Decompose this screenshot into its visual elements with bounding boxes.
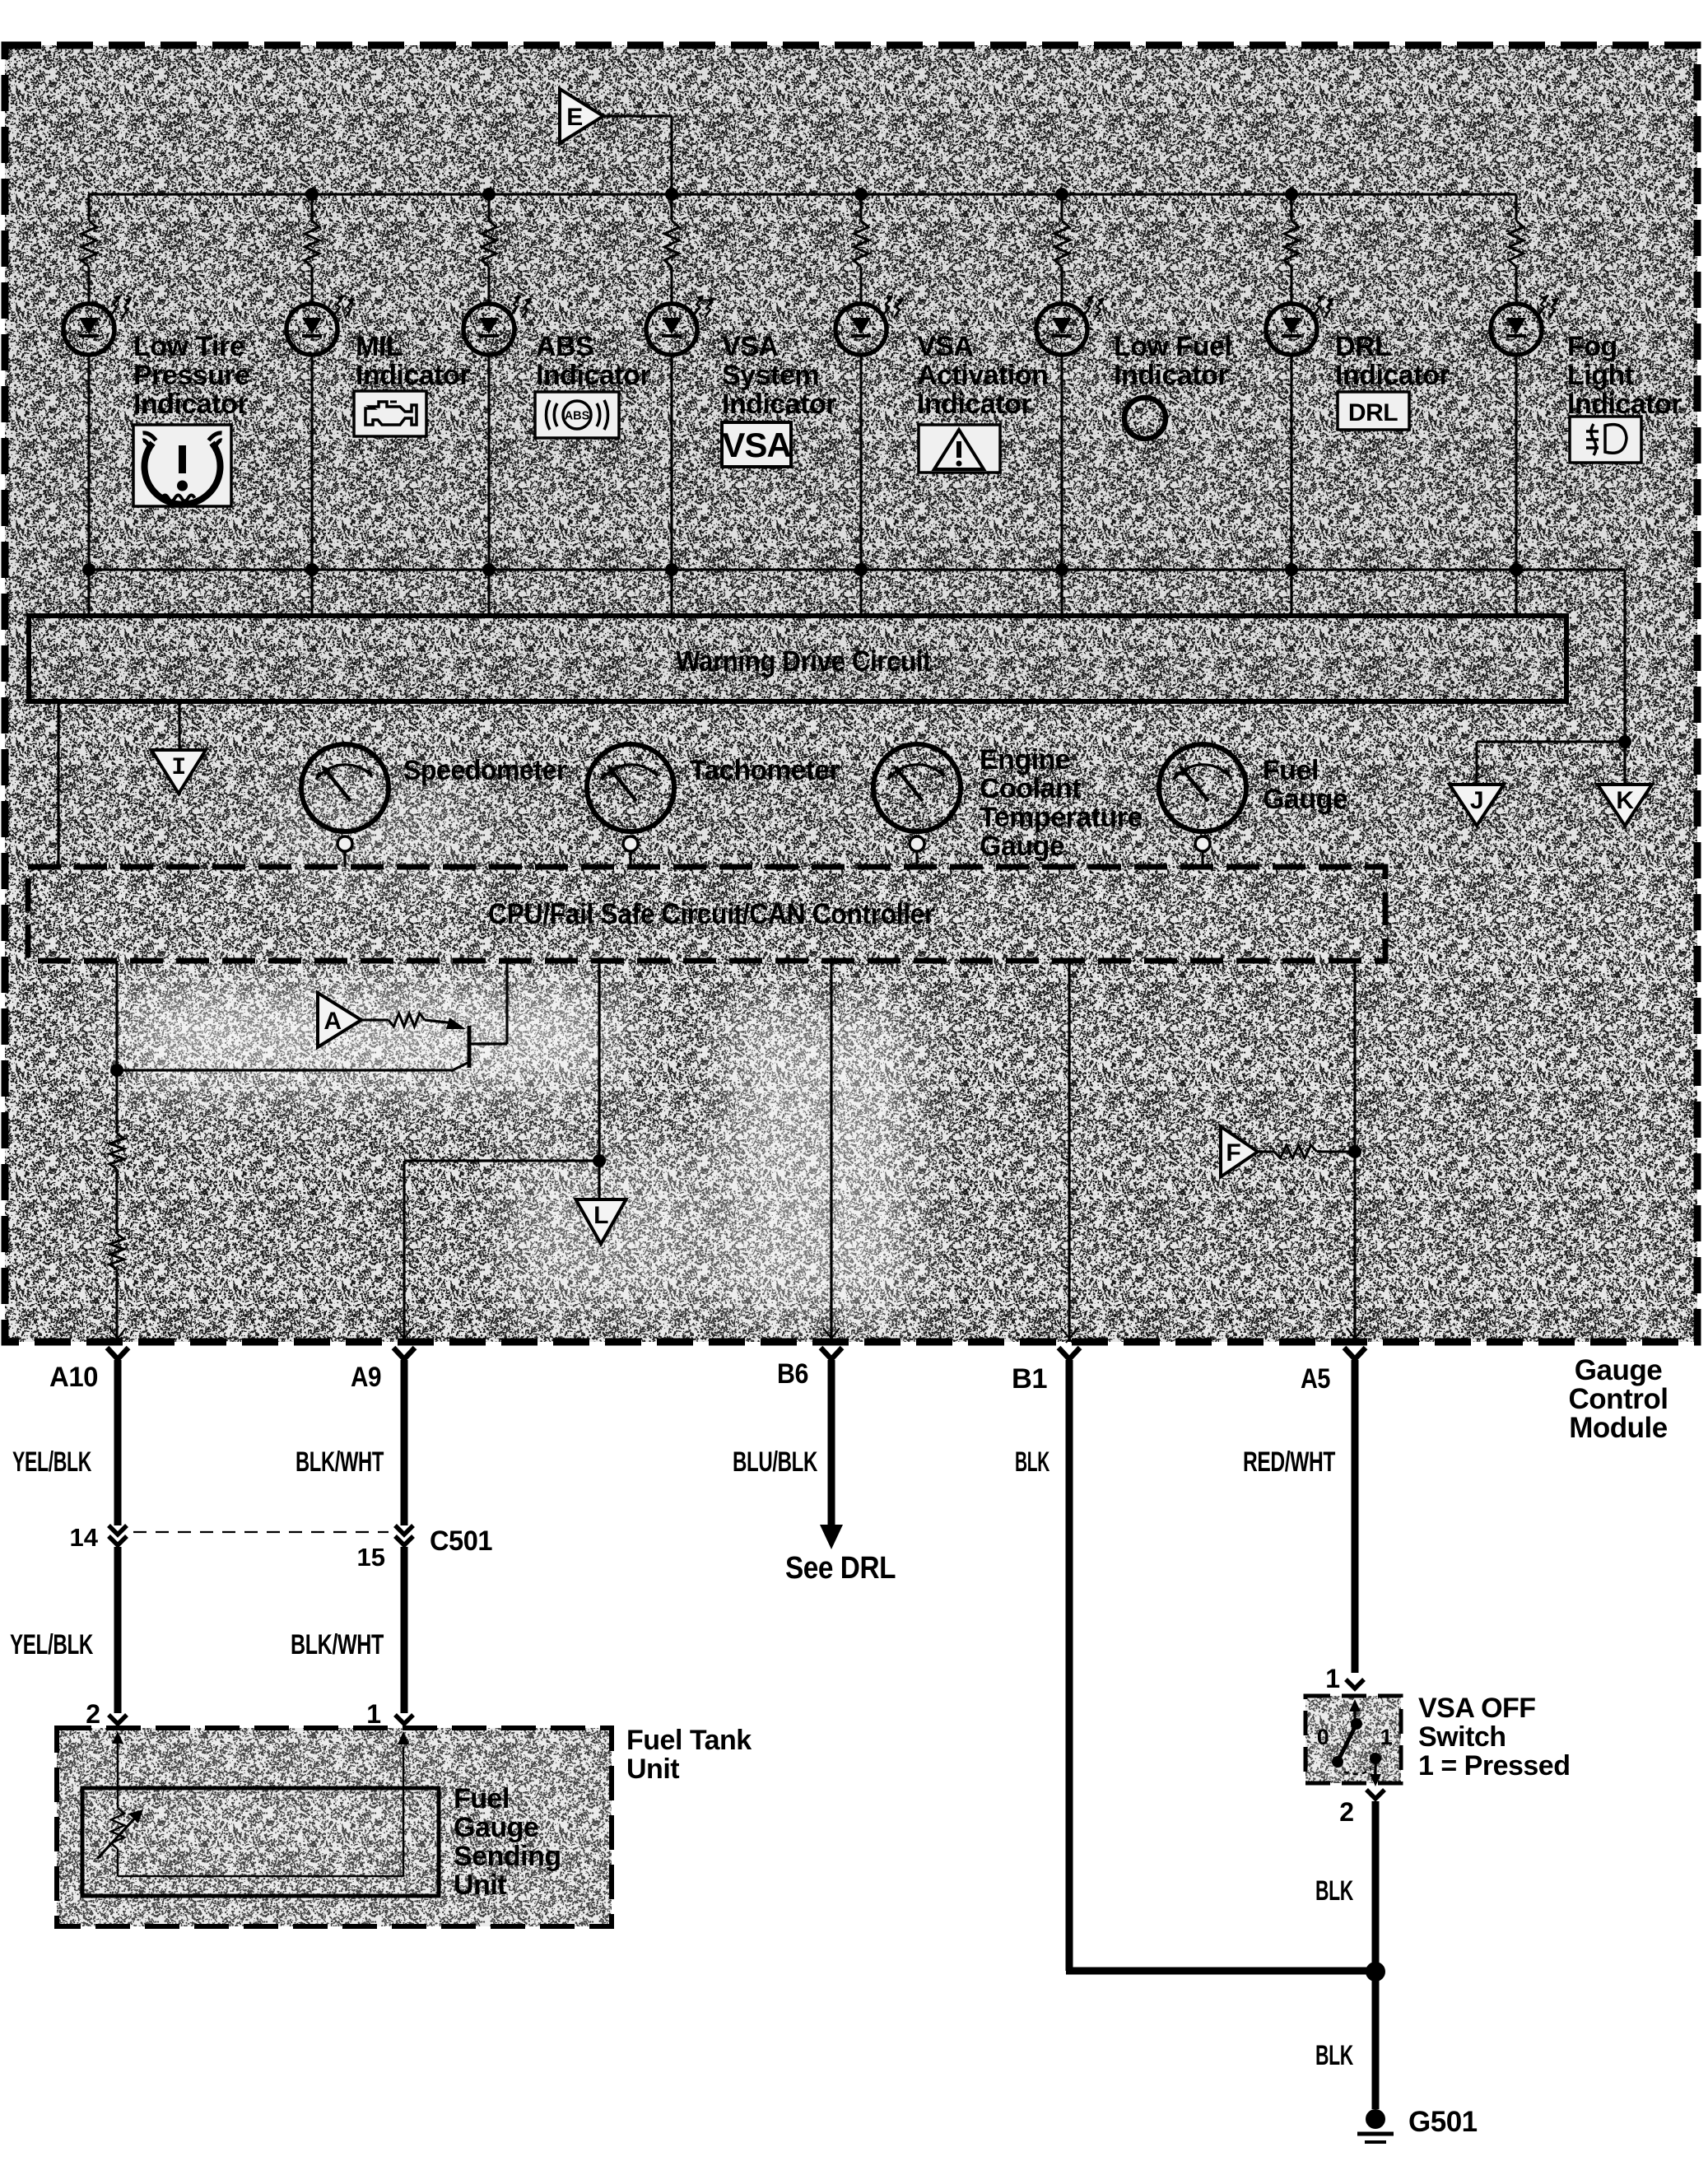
svg-text:Indicator: Indicator xyxy=(536,360,650,391)
svg-text:Pressure: Pressure xyxy=(133,360,250,391)
svg-text:K: K xyxy=(1616,787,1634,814)
svg-text:YEL/BLK: YEL/BLK xyxy=(12,1446,92,1478)
svg-text:System: System xyxy=(722,360,819,391)
svg-text:Low Tire: Low Tire xyxy=(133,331,244,362)
svg-text:Switch: Switch xyxy=(1418,1721,1506,1753)
svg-text:Control: Control xyxy=(1569,1383,1668,1415)
svg-text:Speedometer: Speedometer xyxy=(403,755,566,786)
svg-text:DRL: DRL xyxy=(1348,399,1398,426)
svg-text:BLK: BLK xyxy=(1315,2040,1354,2071)
svg-text:Light: Light xyxy=(1567,360,1634,391)
svg-text:Unit: Unit xyxy=(626,1753,679,1785)
svg-text:BLK: BLK xyxy=(1015,1446,1050,1478)
svg-text:CPU/Fail Safe Circuit/CAN Cont: CPU/Fail Safe Circuit/CAN Controller xyxy=(488,898,935,930)
svg-text:Fuel: Fuel xyxy=(1263,755,1319,786)
svg-text:VSA: VSA xyxy=(722,331,778,362)
svg-text:RED/WHT: RED/WHT xyxy=(1243,1446,1336,1478)
svg-text:Temperature: Temperature xyxy=(980,802,1143,833)
svg-text:A5: A5 xyxy=(1301,1363,1330,1395)
svg-text:Indicator: Indicator xyxy=(917,389,1031,420)
svg-text:2: 2 xyxy=(1339,1797,1354,1827)
svg-text:J: J xyxy=(1470,787,1483,814)
svg-text:See DRL: See DRL xyxy=(785,1551,896,1586)
svg-text:14: 14 xyxy=(70,1523,99,1552)
svg-text:1: 1 xyxy=(366,1699,381,1729)
svg-text:Indicator: Indicator xyxy=(1335,360,1450,391)
svg-text:I: I xyxy=(171,754,186,782)
svg-text:Unit: Unit xyxy=(454,1870,506,1901)
svg-text:Module: Module xyxy=(1569,1412,1668,1444)
svg-text:VSA: VSA xyxy=(917,331,973,362)
svg-text:Fog: Fog xyxy=(1567,331,1617,362)
svg-text:Indicator: Indicator xyxy=(1114,360,1228,391)
svg-text:Gauge: Gauge xyxy=(980,831,1064,862)
svg-text:G501: G501 xyxy=(1408,2106,1478,2138)
svg-text:Tachometer: Tachometer xyxy=(690,755,840,786)
svg-text:Gauge: Gauge xyxy=(1263,784,1347,815)
svg-text:C501: C501 xyxy=(430,1525,492,1557)
svg-text:MIL: MIL xyxy=(356,331,403,362)
svg-text:Low Fuel: Low Fuel xyxy=(1114,331,1231,362)
svg-text:F: F xyxy=(1226,1139,1240,1167)
svg-text:2: 2 xyxy=(86,1699,100,1729)
svg-text:BLK: BLK xyxy=(1315,1875,1354,1907)
svg-text:Gauge: Gauge xyxy=(1575,1354,1662,1386)
svg-text:VSA OFF: VSA OFF xyxy=(1418,1693,1536,1724)
svg-text:BLK/WHT: BLK/WHT xyxy=(296,1446,384,1478)
svg-text:1: 1 xyxy=(1325,1664,1340,1693)
svg-text:Sending: Sending xyxy=(454,1841,561,1872)
svg-text:BLU/BLK: BLU/BLK xyxy=(733,1446,818,1478)
svg-text:Activation: Activation xyxy=(917,360,1048,391)
svg-text:Engine: Engine xyxy=(980,744,1070,775)
svg-text:Warning Drive Circuit: Warning Drive Circuit xyxy=(676,645,932,678)
svg-text:Coolant: Coolant xyxy=(980,773,1081,804)
svg-text:BLK/WHT: BLK/WHT xyxy=(291,1629,384,1660)
svg-text:B1: B1 xyxy=(1012,1363,1047,1395)
svg-text:0: 0 xyxy=(1317,1725,1329,1749)
svg-text:L: L xyxy=(593,1202,608,1229)
svg-text:ABS: ABS xyxy=(565,410,590,423)
svg-text:DRL: DRL xyxy=(1335,331,1391,362)
svg-text:Indicator: Indicator xyxy=(133,389,248,420)
svg-text:YEL/BLK: YEL/BLK xyxy=(10,1629,94,1660)
svg-text:Fuel Tank: Fuel Tank xyxy=(626,1725,752,1756)
svg-text:ABS: ABS xyxy=(536,331,593,362)
svg-text:Gauge: Gauge xyxy=(454,1812,538,1843)
svg-text:A9: A9 xyxy=(351,1362,381,1393)
svg-text:E: E xyxy=(566,104,583,131)
svg-text:Indicator: Indicator xyxy=(356,360,470,391)
svg-text:Indicator: Indicator xyxy=(722,389,836,420)
svg-text:A: A xyxy=(323,1008,341,1035)
svg-text:1: 1 xyxy=(1380,1725,1393,1749)
svg-text:A10: A10 xyxy=(49,1362,98,1393)
svg-text:VSA: VSA xyxy=(722,426,791,464)
svg-text:B6: B6 xyxy=(777,1358,808,1390)
svg-text:Fuel: Fuel xyxy=(454,1783,510,1814)
svg-text:15: 15 xyxy=(357,1543,385,1572)
svg-text:1 = Pressed: 1 = Pressed xyxy=(1418,1750,1570,1781)
